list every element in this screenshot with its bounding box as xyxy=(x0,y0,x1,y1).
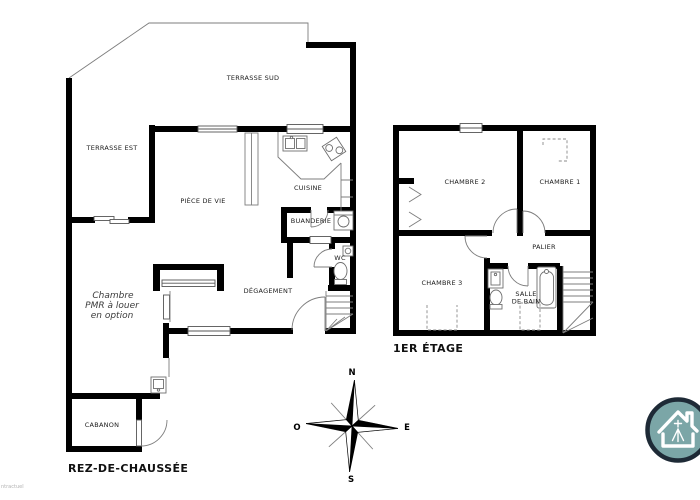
floor-plan-drawing: TERRASSE SUD TERRASSE EST PIÈCE DE VIE C… xyxy=(0,0,700,500)
chambre3-door xyxy=(465,236,487,258)
label-terrasse-est: TERRASSE EST xyxy=(86,144,138,152)
first-floor-plan: CHAMBRE 2 CHAMBRE 1 CHAMBRE 3 PALIER SAL… xyxy=(393,124,596,356)
cabanon-door xyxy=(137,420,168,446)
kitchen-peninsula xyxy=(245,133,258,205)
svg-text:DE BAIN: DE BAIN xyxy=(512,298,541,306)
entry-alcove-walls xyxy=(153,264,224,291)
compass-north-label: N xyxy=(348,368,355,378)
svg-text:en option: en option xyxy=(91,311,134,321)
compass-star xyxy=(304,378,401,475)
label-buanderie: BUANDERIE xyxy=(291,217,331,225)
breton-house-logo xyxy=(648,400,700,461)
floor-plan-document: TERRASSE SUD TERRASSE EST PIÈCE DE VIE C… xyxy=(0,0,700,500)
chambre3-furniture-placeholder xyxy=(427,305,457,330)
label-chambre-1: CHAMBRE 1 xyxy=(539,178,580,186)
kitchen-sink xyxy=(283,136,307,151)
label-chambre-pmr: Chambre PMR à louer en option xyxy=(85,291,140,321)
ground-floor-title: REZ-DE-CHAUSSÉE xyxy=(68,462,188,475)
label-degagement: DÉGAGEMENT xyxy=(244,286,293,295)
ground-floor-plan: TERRASSE SUD TERRASSE EST PIÈCE DE VIE C… xyxy=(66,23,356,475)
label-palier: PALIER xyxy=(532,243,556,251)
label-salle-de-bain: SALLE DE BAIN xyxy=(512,290,541,306)
chambre1-furniture-placeholder xyxy=(543,139,567,161)
label-wc: WC xyxy=(334,254,346,262)
south-window xyxy=(188,327,230,336)
pmr-sink xyxy=(151,377,166,393)
label-cabanon: CABANON xyxy=(85,421,119,429)
stove xyxy=(322,137,346,161)
ground-floor-walls xyxy=(66,42,356,452)
label-chambre-3: CHAMBRE 3 xyxy=(421,279,462,287)
label-piece-de-vie: PIÈCE DE VIE xyxy=(180,196,225,205)
bathroom-toilet xyxy=(490,290,502,309)
terrace-sliding-door xyxy=(94,217,129,224)
chambre2-door xyxy=(493,209,517,233)
alcove-window xyxy=(162,280,215,287)
pmr-door-leaf xyxy=(164,295,170,319)
bay-window xyxy=(198,126,237,132)
chambre1-door xyxy=(523,211,545,233)
terrace-outline xyxy=(69,23,308,78)
compass-rose-icon xyxy=(304,378,401,475)
ground-floor-fixtures xyxy=(151,132,353,393)
wc-toilet xyxy=(334,263,347,285)
bathroom-sink xyxy=(488,269,503,288)
laundry-threshold xyxy=(310,237,331,244)
first-floor-doors xyxy=(409,187,545,286)
first-floor-title: 1ER ÉTAGE xyxy=(393,342,463,355)
label-terrasse-sud: TERRASSE SUD xyxy=(226,74,280,82)
bathroom-door xyxy=(508,266,528,286)
watermark-text: ntractuel xyxy=(1,484,24,490)
wc-door xyxy=(314,249,332,267)
svg-text:Chambre: Chambre xyxy=(92,291,134,301)
washing-machine xyxy=(334,211,353,230)
front-door xyxy=(292,297,325,331)
stairs-ground xyxy=(326,291,353,331)
compass-east-label: E xyxy=(404,423,410,433)
label-chambre-2: CHAMBRE 2 xyxy=(444,178,485,186)
label-cuisine: CUISINE xyxy=(294,184,322,192)
closet-folding-doors xyxy=(409,187,421,227)
compass-west-label: O xyxy=(293,423,300,433)
first-floor-windows xyxy=(460,124,482,133)
stairs-first xyxy=(563,266,593,333)
svg-text:PMR à louer: PMR à louer xyxy=(85,301,140,311)
compass-south-label: S xyxy=(348,475,354,485)
